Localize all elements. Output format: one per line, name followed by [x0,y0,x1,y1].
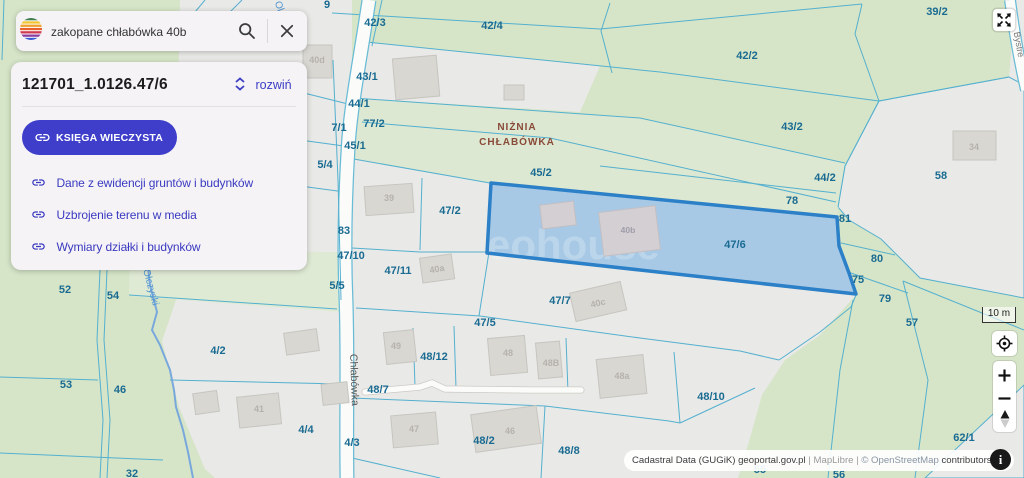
svg-text:81: 81 [839,213,851,225]
svg-text:58: 58 [935,170,947,182]
svg-text:78: 78 [786,195,798,207]
svg-text:48/7: 48/7 [367,384,388,396]
svg-text:48/8: 48/8 [558,445,579,457]
svg-text:45/2: 45/2 [530,167,551,179]
svg-text:83: 83 [338,225,350,237]
svg-text:40d: 40d [309,55,325,65]
svg-text:47: 47 [409,424,419,434]
svg-text:48a: 48a [614,371,630,381]
svg-text:4/2: 4/2 [210,345,225,357]
svg-text:48/10: 48/10 [697,391,725,403]
svg-text:45/1: 45/1 [344,140,365,152]
svg-text:46: 46 [114,384,126,396]
svg-text:CHŁABÓWKA: CHŁABÓWKA [479,135,555,148]
svg-text:40b: 40b [621,225,636,235]
svg-text:47/7: 47/7 [549,295,570,307]
svg-text:43/2: 43/2 [781,121,802,133]
svg-text:77/2: 77/2 [363,118,384,130]
svg-text:48B: 48B [543,358,560,368]
svg-text:48: 48 [503,348,513,358]
svg-text:4/3: 4/3 [344,437,359,449]
svg-text:43/1: 43/1 [356,71,377,83]
svg-text:47/10: 47/10 [337,250,365,262]
svg-text:32: 32 [126,468,138,478]
svg-text:47/11: 47/11 [385,265,412,277]
svg-text:41: 41 [254,404,264,414]
svg-text:44/2: 44/2 [814,172,835,184]
svg-text:44/1: 44/1 [348,98,369,110]
svg-text:7/1: 7/1 [331,122,346,134]
svg-text:53: 53 [60,379,72,391]
svg-text:75: 75 [852,274,864,286]
svg-text:46: 46 [505,426,515,436]
svg-text:79: 79 [879,293,891,305]
svg-text:47/5: 47/5 [474,317,495,329]
svg-text:5/5: 5/5 [329,280,344,292]
svg-text:62/1: 62/1 [953,432,974,444]
svg-text:9: 9 [324,0,330,11]
svg-text:42/3: 42/3 [364,17,385,29]
svg-text:57: 57 [906,317,918,329]
svg-text:4/4: 4/4 [298,424,314,436]
svg-text:Chłabówka: Chłabówka [347,354,361,406]
svg-text:NIŻNIA: NIŻNIA [497,120,536,133]
svg-text:47/6: 47/6 [724,239,745,251]
svg-text:34: 34 [969,142,979,152]
svg-text:80: 80 [871,253,883,265]
svg-text:48/12: 48/12 [420,351,448,363]
svg-text:47/2: 47/2 [439,205,460,217]
svg-text:48/2: 48/2 [473,435,494,447]
svg-text:39: 39 [384,193,394,203]
svg-text:54: 54 [107,290,120,302]
svg-text:39/2: 39/2 [926,6,947,18]
svg-text:49: 49 [391,341,401,351]
svg-text:5/4: 5/4 [317,159,333,171]
svg-text:42/4: 42/4 [481,20,503,32]
svg-text:52: 52 [59,284,71,296]
svg-text:42/2: 42/2 [736,50,757,62]
